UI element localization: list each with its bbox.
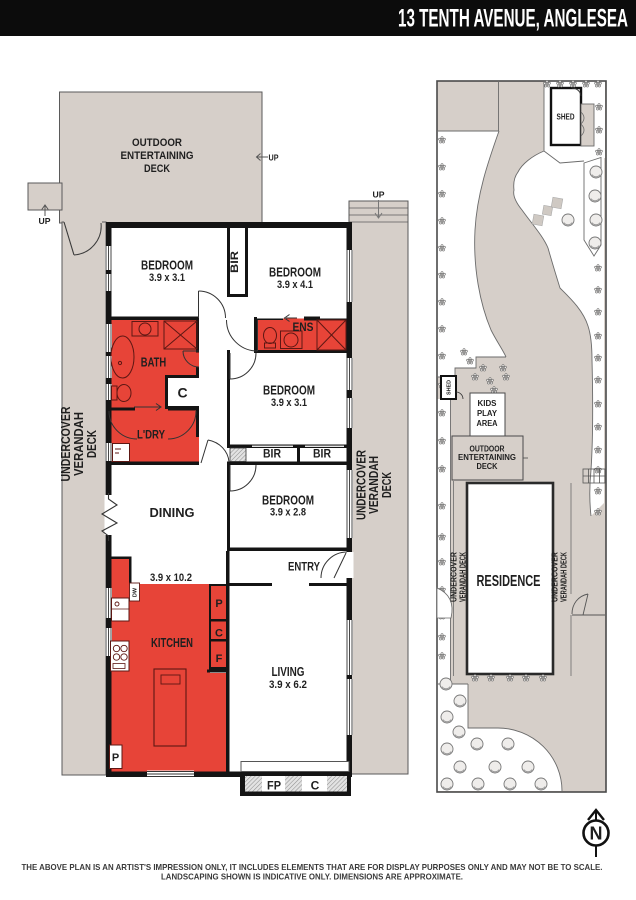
svg-text:LANDSCAPING SHOWN IS INDICATIV: LANDSCAPING SHOWN IS INDICATIVE ONLY. DI… [161, 872, 463, 882]
svg-text:VERANDAH: VERANDAH [72, 412, 86, 476]
svg-text:3.9 x 3.1: 3.9 x 3.1 [271, 397, 307, 409]
svg-text:ENTRY: ENTRY [288, 560, 320, 574]
svg-text:BEDROOM: BEDROOM [269, 266, 321, 280]
svg-text:DINING: DINING [150, 506, 195, 520]
svg-text:BIR: BIR [313, 447, 331, 461]
svg-text:ENTERTAINING: ENTERTAINING [458, 453, 516, 462]
svg-text:PLAY: PLAY [477, 409, 498, 418]
svg-text:DW: DW [133, 587, 139, 597]
svg-text:C: C [215, 628, 223, 640]
svg-text:ENTERTAINING: ENTERTAINING [121, 150, 194, 162]
svg-text:RESIDENCE: RESIDENCE [477, 573, 541, 590]
svg-text:F: F [216, 653, 223, 665]
svg-text:KIDS: KIDS [478, 399, 498, 408]
svg-text:UP: UP [269, 153, 279, 163]
svg-text:UNDERCOVER: UNDERCOVER [59, 407, 73, 482]
svg-text:L'DRY: L'DRY [137, 428, 165, 442]
svg-text:AREA: AREA [477, 419, 498, 428]
svg-text:3.9 x 10.2: 3.9 x 10.2 [150, 572, 192, 584]
svg-text:BEDROOM: BEDROOM [263, 384, 315, 398]
svg-text:UP: UP [39, 216, 51, 226]
svg-text:P: P [215, 598, 222, 610]
svg-text:VERANDAH: VERANDAH [367, 456, 381, 514]
svg-text:P: P [112, 752, 119, 764]
svg-text:OUTDOOR: OUTDOOR [132, 137, 182, 149]
svg-text:ENS: ENS [293, 320, 314, 334]
svg-text:13 TENTH AVENUE, ANGLESEA: 13 TENTH AVENUE, ANGLESEA [398, 5, 628, 33]
svg-text:DECK: DECK [85, 430, 99, 458]
svg-text:UNDERCOVER: UNDERCOVER [551, 552, 560, 602]
svg-text:3.9 x 6.2: 3.9 x 6.2 [269, 679, 307, 691]
svg-text:LIVING: LIVING [272, 665, 305, 679]
svg-text:VERANDAH DECK: VERANDAH DECK [560, 552, 569, 602]
svg-text:SHED: SHED [557, 113, 575, 122]
svg-text:BIR: BIR [263, 447, 281, 461]
svg-text:N: N [590, 824, 603, 844]
svg-text:3.9 x 3.1: 3.9 x 3.1 [149, 272, 185, 284]
svg-text:DECK: DECK [144, 163, 170, 175]
svg-text:C: C [311, 779, 320, 793]
svg-text:C: C [177, 385, 187, 401]
svg-text:THE ABOVE PLAN IS AN ARTIST'S: THE ABOVE PLAN IS AN ARTIST'S IMPRESSION… [22, 862, 603, 872]
svg-text:BIR: BIR [229, 251, 241, 273]
svg-text:VERANDAH DECK: VERANDAH DECK [459, 552, 468, 602]
svg-text:3.9 x 4.1: 3.9 x 4.1 [277, 279, 313, 291]
svg-text:BEDROOM: BEDROOM [262, 494, 314, 508]
svg-text:3.9 x 2.8: 3.9 x 2.8 [270, 507, 306, 519]
svg-text:KITCHEN: KITCHEN [151, 636, 193, 650]
svg-text:SHED: SHED [447, 380, 453, 395]
svg-text:BATH: BATH [141, 355, 167, 370]
svg-text:UP: UP [373, 190, 385, 200]
svg-text:BEDROOM: BEDROOM [141, 259, 193, 273]
svg-text:DECK: DECK [380, 472, 394, 498]
svg-text:DECK: DECK [477, 462, 498, 471]
svg-text:UNDERCOVER: UNDERCOVER [450, 552, 459, 602]
svg-text:FP: FP [267, 779, 281, 793]
